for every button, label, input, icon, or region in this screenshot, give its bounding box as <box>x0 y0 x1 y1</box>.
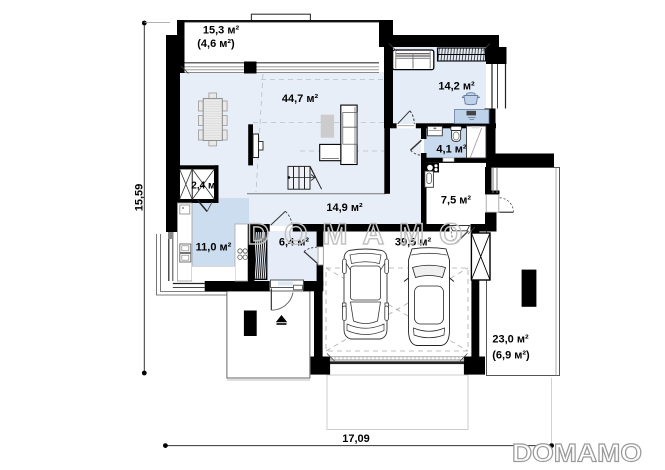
svg-text:4,1 м²: 4,1 м² <box>436 144 466 156</box>
svg-text:DOMAMO: DOMAMO <box>248 218 478 251</box>
svg-text:14,2 м²: 14,2 м² <box>438 81 475 93</box>
svg-text:44,7 м²: 44,7 м² <box>282 93 319 105</box>
svg-text:2,4 м²: 2,4 м² <box>191 181 219 192</box>
svg-text:15,3 м²: 15,3 м² <box>203 25 240 37</box>
svg-text:15,59: 15,59 <box>133 184 145 212</box>
svg-text:11,0 м²: 11,0 м² <box>196 242 232 254</box>
svg-text:23,0 м²: 23,0 м² <box>492 334 529 346</box>
svg-text:DOMAMO: DOMAMO <box>512 440 642 468</box>
svg-text:14,9 м²: 14,9 м² <box>326 202 363 214</box>
svg-text:(6,9 м²): (6,9 м²) <box>492 350 530 362</box>
svg-text:17,09: 17,09 <box>342 433 370 445</box>
svg-text:7,5 м²: 7,5 м² <box>441 195 471 207</box>
svg-text:(4,6 м²): (4,6 м²) <box>197 38 235 50</box>
